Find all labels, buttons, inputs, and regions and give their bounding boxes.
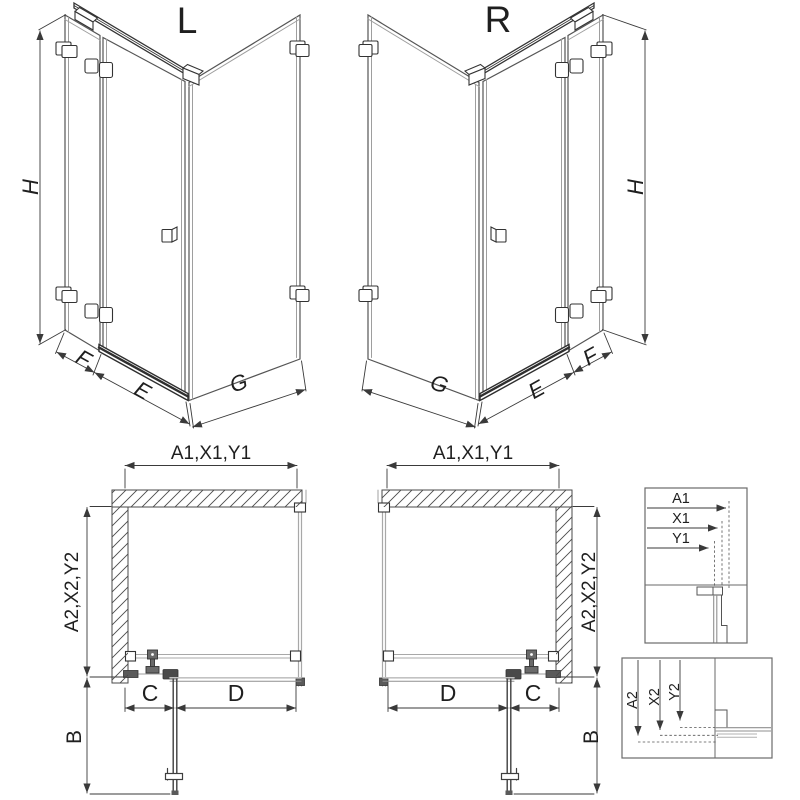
bar-clamp-plan: [146, 650, 159, 673]
detail-width-y1-label: Y1: [672, 531, 690, 547]
detail-width-a1-label: A1: [672, 491, 690, 507]
detail-box-extension-depth: [622, 658, 772, 758]
plan-right-width-label: A1,X1,Y1: [433, 443, 513, 464]
height-label-left: H: [18, 179, 43, 195]
plan-left-swing-label: B: [63, 730, 86, 744]
detail-depth-a2-label: A2: [625, 691, 641, 709]
detail-depth-x2-label: X2: [647, 688, 663, 706]
door-handle: [162, 227, 177, 242]
side-panel: [189, 15, 300, 401]
door-width-label-right: E: [524, 375, 549, 404]
door-hinges: [85, 59, 113, 323]
fixed-width-label-left: F: [72, 344, 97, 373]
side-width-label-left: G: [227, 368, 251, 397]
iso-right-title: R: [485, 0, 512, 40]
iso-left-title: L: [177, 0, 198, 41]
plan-left-door-label: D: [228, 680, 245, 706]
door-panel: [103, 38, 185, 400]
detail-depth-y2-label: Y2: [667, 683, 683, 701]
support-bar-plan: [126, 650, 301, 673]
plan-right-door-label: D: [440, 680, 457, 706]
plan-right-depth-label: A2,X2,Y2: [579, 552, 600, 632]
detail-box-extension-width: [645, 488, 747, 643]
iso-view-right: [359, 3, 613, 428]
open-door-plan: [166, 679, 183, 795]
plan-left-depth-label: A2,X2,Y2: [62, 552, 83, 632]
door-width-label-left: E: [130, 376, 155, 405]
plan-left-width-label: A1,X1,Y1: [171, 443, 251, 464]
plan-left-fixed-label: C: [142, 680, 159, 706]
height-label-right: H: [623, 179, 648, 195]
door-handle-plan: [166, 769, 183, 781]
fixed-width-label-right: F: [578, 341, 603, 370]
technical-drawing: L R H H F E G F E G A1,X1,Y1 A2,X2,Y2 C …: [0, 0, 800, 800]
detail-width-x1-label: X1: [672, 511, 690, 527]
plan-right-fixed-label: C: [525, 680, 542, 706]
iso-view-left: [56, 3, 310, 428]
plan-right-swing-label: B: [580, 730, 603, 744]
side-width-label-right: G: [427, 369, 451, 398]
